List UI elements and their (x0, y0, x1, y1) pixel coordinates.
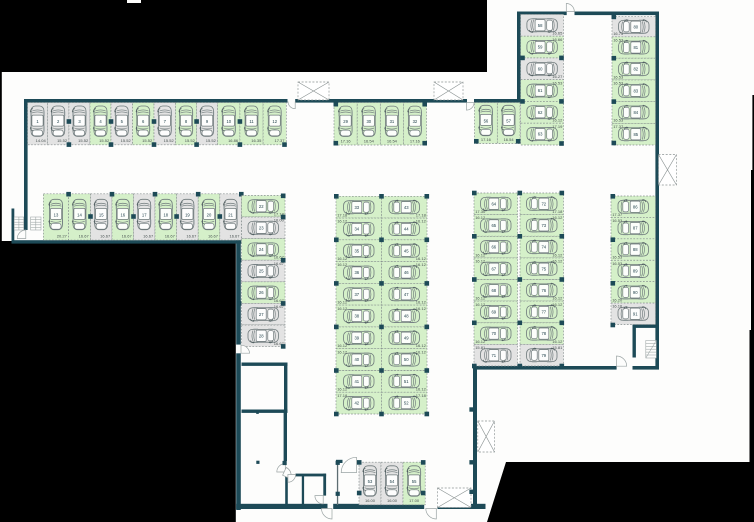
svg-text:72: 72 (541, 201, 546, 206)
svg-text:16.16: 16.16 (612, 304, 623, 309)
svg-text:17.19: 17.19 (552, 124, 563, 129)
svg-text:16.67: 16.67 (79, 234, 90, 239)
svg-text:17.30: 17.30 (475, 209, 486, 214)
svg-text:16.35: 16.35 (251, 138, 262, 143)
svg-text:69: 69 (491, 310, 496, 315)
svg-text:15.52: 15.52 (164, 138, 175, 143)
svg-text:48: 48 (404, 314, 409, 319)
svg-text:16.12: 16.12 (475, 259, 486, 264)
svg-text:16.67: 16.67 (143, 234, 154, 239)
svg-text:41: 41 (354, 379, 359, 384)
svg-text:66: 66 (491, 245, 496, 250)
svg-text:44: 44 (404, 227, 409, 232)
svg-text:46: 46 (404, 270, 409, 275)
svg-text:17.16: 17.16 (410, 138, 421, 143)
svg-text:56: 56 (484, 118, 489, 123)
svg-text:16.53: 16.53 (613, 81, 624, 86)
svg-text:34: 34 (354, 227, 359, 232)
svg-text:16.12: 16.12 (337, 300, 348, 305)
svg-text:62: 62 (538, 110, 543, 115)
svg-text:17.18: 17.18 (337, 213, 348, 218)
svg-text:16.12: 16.12 (416, 343, 427, 348)
svg-text:33: 33 (354, 205, 359, 210)
svg-text:40: 40 (354, 357, 359, 362)
svg-text:15.52: 15.52 (185, 138, 196, 143)
svg-text:16.12: 16.12 (337, 256, 348, 261)
svg-text:17.18: 17.18 (552, 209, 563, 214)
svg-text:16.53: 16.53 (613, 74, 624, 79)
svg-text:65: 65 (491, 223, 496, 228)
svg-text:70: 70 (491, 331, 496, 336)
svg-text:17.18: 17.18 (416, 393, 427, 398)
svg-text:16.53: 16.53 (612, 261, 623, 266)
svg-text:16.12: 16.12 (475, 339, 486, 344)
svg-text:17.16: 17.16 (341, 138, 352, 143)
svg-text:16.86: 16.86 (228, 138, 239, 143)
svg-text:86: 86 (633, 204, 638, 209)
svg-text:16.53: 16.53 (613, 118, 624, 123)
svg-text:45: 45 (404, 248, 409, 253)
svg-text:16.53: 16.53 (612, 218, 623, 223)
svg-text:15.52: 15.52 (99, 138, 110, 143)
svg-text:16.00: 16.00 (365, 498, 376, 503)
svg-text:16.53: 16.53 (613, 37, 624, 42)
svg-text:71: 71 (491, 353, 496, 358)
svg-text:17: 17 (142, 212, 147, 217)
svg-text:80: 80 (633, 24, 638, 29)
svg-text:90: 90 (633, 290, 638, 295)
svg-text:16.00: 16.00 (387, 498, 398, 503)
svg-text:16.12: 16.12 (337, 306, 348, 311)
svg-text:16.12: 16.12 (416, 349, 427, 354)
svg-text:16.12: 16.12 (337, 343, 348, 348)
svg-text:87: 87 (633, 226, 638, 231)
svg-text:16.67: 16.67 (229, 234, 240, 239)
svg-text:16.12: 16.12 (475, 252, 486, 257)
svg-text:59: 59 (538, 45, 543, 50)
svg-text:15: 15 (99, 212, 104, 217)
svg-text:20.27: 20.27 (57, 234, 68, 239)
svg-text:73: 73 (541, 223, 546, 228)
svg-text:89: 89 (633, 269, 638, 274)
svg-text:63: 63 (538, 132, 543, 137)
svg-text:29: 29 (343, 119, 348, 124)
svg-text:82: 82 (633, 67, 638, 72)
svg-text:16.53: 16.53 (612, 255, 623, 260)
svg-text:16.12: 16.12 (552, 215, 563, 220)
svg-text:16.53: 16.53 (552, 80, 563, 85)
svg-text:42: 42 (354, 401, 359, 406)
svg-text:25: 25 (259, 269, 264, 274)
svg-text:78: 78 (541, 331, 546, 336)
svg-text:27: 27 (259, 312, 264, 317)
svg-text:32: 32 (413, 119, 418, 124)
svg-text:61: 61 (538, 88, 543, 93)
svg-text:21: 21 (228, 212, 233, 217)
svg-text:50: 50 (404, 357, 409, 362)
svg-text:16.67: 16.67 (100, 234, 111, 239)
svg-text:16.12: 16.12 (337, 219, 348, 224)
svg-text:88: 88 (633, 247, 638, 252)
svg-text:60: 60 (538, 66, 543, 71)
svg-text:15.52: 15.52 (57, 138, 68, 143)
svg-text:77: 77 (541, 310, 546, 315)
svg-text:58: 58 (538, 23, 543, 28)
svg-text:36: 36 (354, 270, 359, 275)
svg-text:79: 79 (541, 353, 546, 358)
svg-text:16.67: 16.67 (165, 234, 176, 239)
svg-text:64: 64 (491, 201, 496, 206)
svg-text:16.67: 16.67 (186, 234, 197, 239)
svg-text:16.12: 16.12 (552, 252, 563, 257)
svg-text:81: 81 (633, 45, 638, 50)
svg-text:15.52: 15.52 (78, 138, 89, 143)
svg-text:39: 39 (354, 335, 359, 340)
svg-text:76: 76 (541, 288, 546, 293)
svg-text:47: 47 (404, 292, 409, 297)
svg-text:91: 91 (633, 311, 638, 316)
svg-text:57: 57 (506, 118, 511, 123)
svg-text:16.54: 16.54 (364, 138, 375, 143)
svg-text:38: 38 (354, 314, 359, 319)
svg-text:16.12: 16.12 (552, 296, 563, 301)
svg-text:14: 14 (77, 212, 82, 217)
svg-text:16.12: 16.12 (475, 302, 486, 307)
svg-text:22: 22 (259, 204, 264, 209)
svg-text:37: 37 (354, 292, 359, 297)
svg-text:17.37: 17.37 (612, 212, 623, 217)
svg-text:16.12: 16.12 (552, 339, 563, 344)
svg-text:26: 26 (259, 290, 264, 295)
svg-text:16.75: 16.75 (613, 31, 624, 36)
svg-text:16.54: 16.54 (387, 138, 398, 143)
svg-text:84: 84 (633, 110, 638, 115)
svg-text:16.12: 16.12 (416, 256, 427, 261)
svg-text:49: 49 (404, 335, 409, 340)
svg-text:12: 12 (272, 119, 277, 124)
svg-text:16.12: 16.12 (337, 349, 348, 354)
svg-text:53: 53 (368, 479, 373, 484)
svg-text:16.27: 16.27 (552, 74, 563, 79)
svg-text:30: 30 (366, 119, 371, 124)
svg-text:67: 67 (491, 266, 496, 271)
svg-text:51: 51 (404, 379, 409, 384)
svg-text:17.18: 17.18 (416, 213, 427, 218)
svg-text:10: 10 (226, 119, 231, 124)
svg-text:19: 19 (185, 212, 190, 217)
svg-text:16.54: 16.54 (504, 137, 515, 142)
svg-text:55: 55 (412, 479, 417, 484)
svg-text:20: 20 (207, 212, 212, 217)
svg-text:16.12: 16.12 (416, 262, 427, 267)
svg-text:15.81: 15.81 (552, 345, 563, 350)
svg-text:74: 74 (541, 245, 546, 250)
svg-text:16.67: 16.67 (208, 234, 219, 239)
svg-text:17.00: 17.00 (409, 498, 420, 503)
svg-text:16.12: 16.12 (337, 262, 348, 267)
svg-text:13: 13 (54, 212, 59, 217)
svg-text:11: 11 (249, 119, 254, 124)
svg-text:15.81: 15.81 (475, 345, 486, 350)
svg-text:16.12: 16.12 (552, 302, 563, 307)
svg-text:16.12: 16.12 (552, 118, 563, 123)
svg-text:16.67: 16.67 (122, 234, 133, 239)
svg-text:85: 85 (633, 132, 638, 137)
svg-text:68: 68 (491, 288, 496, 293)
svg-text:17.18: 17.18 (337, 393, 348, 398)
svg-text:16.12: 16.12 (416, 306, 427, 311)
svg-text:16.12: 16.12 (416, 387, 427, 392)
svg-text:83: 83 (633, 88, 638, 93)
svg-text:54: 54 (390, 479, 395, 484)
svg-text:15.52: 15.52 (142, 138, 153, 143)
svg-text:16.12: 16.12 (552, 259, 563, 264)
svg-text:15.52: 15.52 (206, 138, 217, 143)
svg-text:24: 24 (259, 247, 264, 252)
svg-text:31: 31 (390, 119, 395, 124)
svg-text:17.37: 17.37 (613, 124, 624, 129)
svg-text:16.12: 16.12 (416, 219, 427, 224)
svg-text:16.12: 16.12 (416, 300, 427, 305)
svg-text:15.52: 15.52 (121, 138, 132, 143)
svg-text:16.65: 16.65 (552, 31, 563, 36)
svg-text:18: 18 (163, 212, 168, 217)
svg-text:16: 16 (120, 212, 125, 217)
svg-text:16.12: 16.12 (337, 387, 348, 392)
svg-text:75: 75 (541, 266, 546, 271)
svg-text:43: 43 (404, 205, 409, 210)
svg-text:16.20: 16.20 (612, 298, 623, 303)
svg-text:17.16: 17.16 (481, 137, 492, 142)
svg-text:28: 28 (259, 333, 264, 338)
svg-text:16.66: 16.66 (552, 37, 563, 42)
svg-text:14.04: 14.04 (36, 138, 47, 143)
svg-text:35: 35 (354, 248, 359, 253)
svg-text:52: 52 (404, 401, 409, 406)
svg-text:16.12: 16.12 (475, 296, 486, 301)
svg-text:16.12: 16.12 (475, 215, 486, 220)
svg-text:23: 23 (259, 225, 264, 230)
